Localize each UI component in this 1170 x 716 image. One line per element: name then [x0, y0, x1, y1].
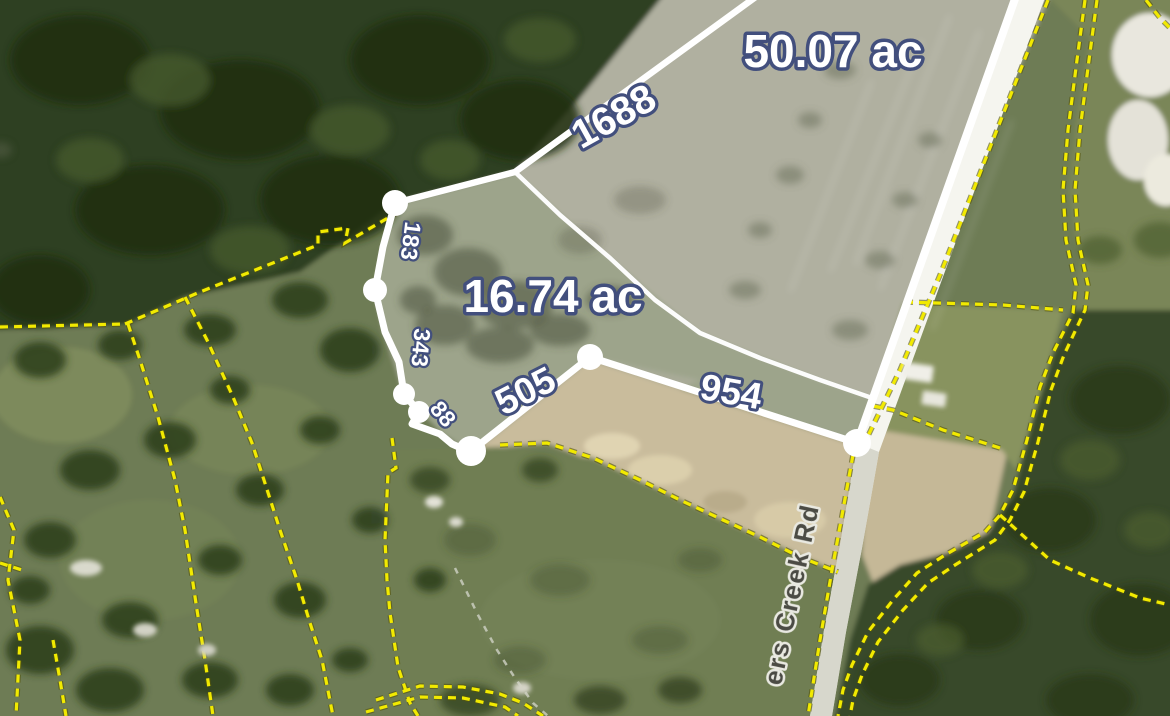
parcel-16-area-label: 16.74 ac [463, 270, 642, 322]
segment-183-label: 183 [396, 220, 426, 261]
vertex-dot [382, 190, 408, 216]
parcel-50-area-label: 50.07 ac [743, 25, 922, 77]
vertex-dot [843, 429, 871, 457]
vertex-dot [577, 344, 603, 370]
vertex-dot [393, 383, 415, 405]
segment-343-label: 343 [406, 327, 435, 367]
map-canvas[interactable]: 50.07 ac 16.74 ac 1688 183 343 88 505 95… [0, 0, 1170, 716]
vertex-dot [456, 436, 486, 466]
vertex-dot [363, 278, 387, 302]
